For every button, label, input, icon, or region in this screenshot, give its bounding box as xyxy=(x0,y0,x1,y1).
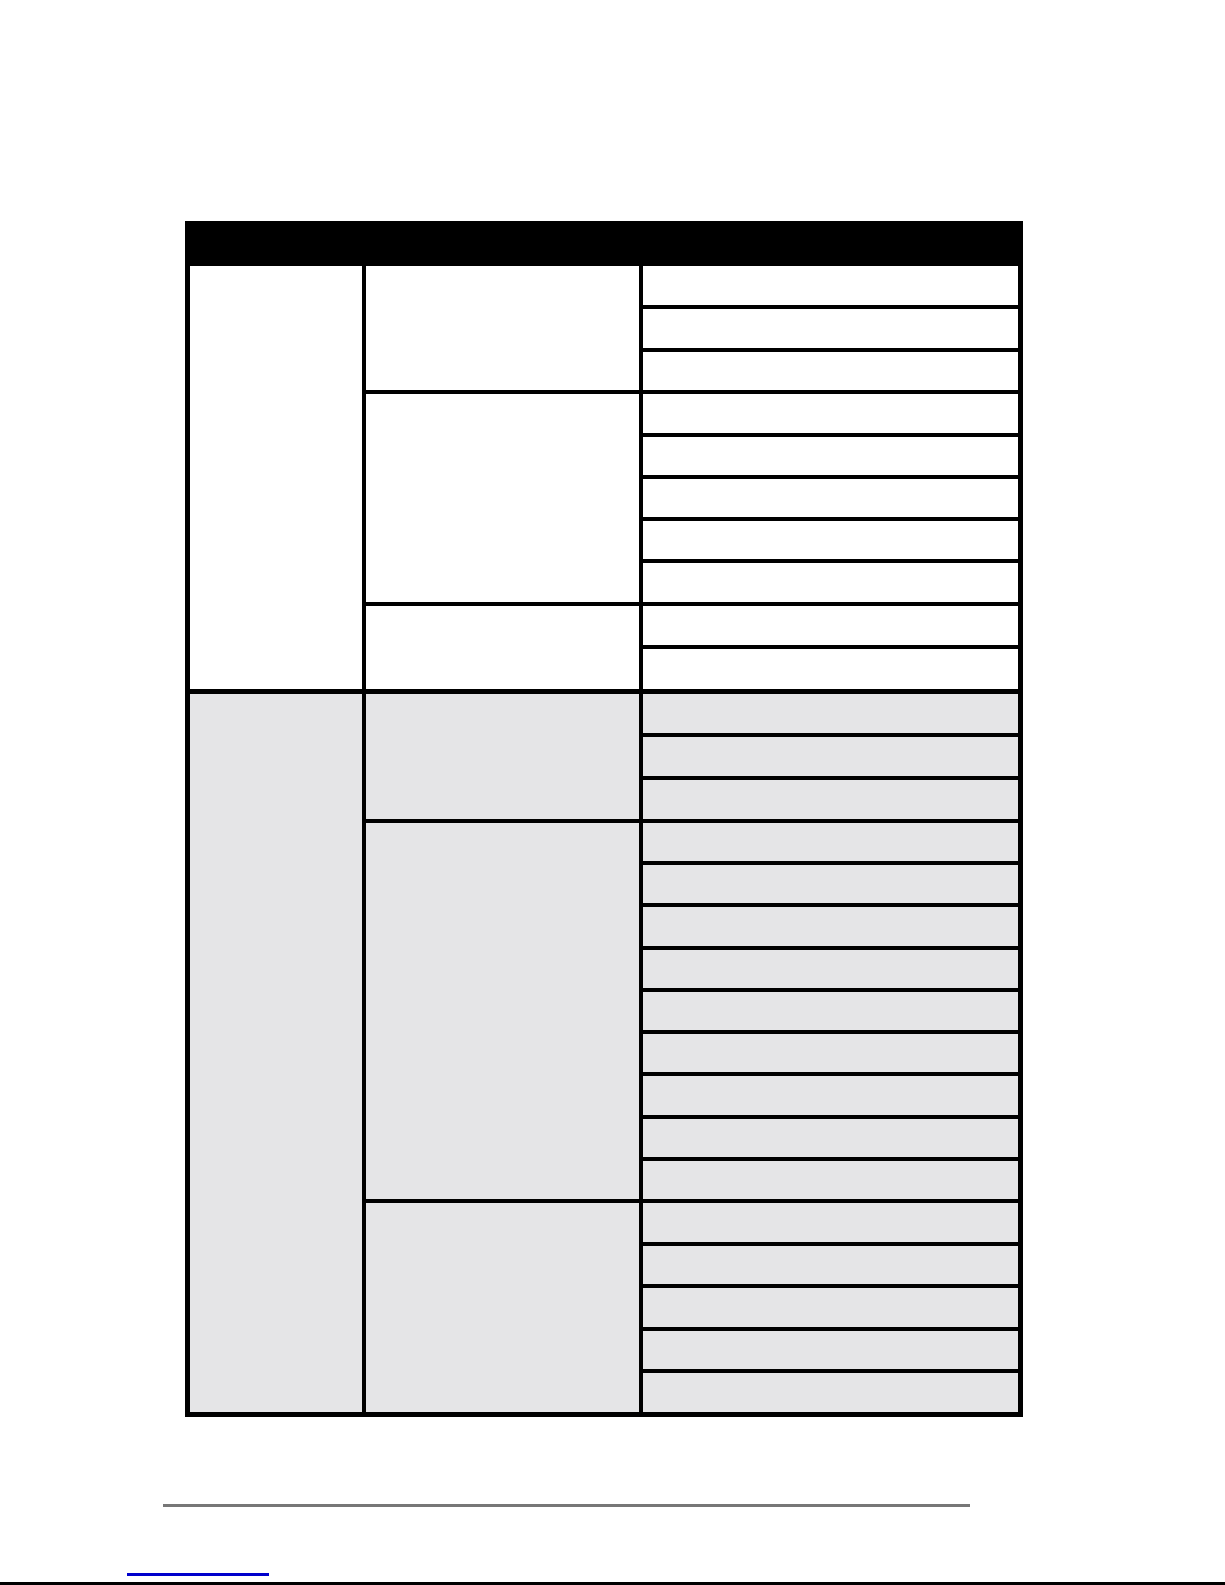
item-cell xyxy=(643,1115,1018,1157)
item-cell xyxy=(643,348,1018,391)
item-cell xyxy=(643,903,1018,945)
item-cell xyxy=(643,1284,1018,1327)
item-cell xyxy=(643,517,1018,559)
subcategory-cell xyxy=(366,694,643,819)
row-group xyxy=(366,602,1018,689)
subcategory-cell xyxy=(366,394,643,601)
item-cell xyxy=(643,861,1018,903)
item-cell xyxy=(643,988,1018,1030)
row-group xyxy=(366,1199,1018,1412)
category-cell xyxy=(190,266,366,689)
footer-link-underline[interactable] xyxy=(127,1573,269,1576)
item-rows xyxy=(643,1203,1018,1412)
item-cell xyxy=(643,559,1018,601)
item-cell xyxy=(643,1157,1018,1199)
item-cell xyxy=(643,394,1018,432)
table-header-bar xyxy=(188,224,1020,266)
item-rows xyxy=(643,266,1018,390)
item-rows xyxy=(643,394,1018,601)
spec-table xyxy=(185,221,1023,1417)
item-cell xyxy=(643,1203,1018,1242)
section-groups xyxy=(366,694,1018,1412)
item-cell xyxy=(643,645,1018,688)
item-rows xyxy=(643,606,1018,689)
item-rows xyxy=(643,823,1018,1199)
subcategory-cell xyxy=(366,606,643,689)
footer-rule xyxy=(163,1504,970,1507)
table-section-lower xyxy=(190,689,1018,1412)
subcategory-cell xyxy=(366,823,643,1199)
item-cell xyxy=(643,1327,1018,1370)
table-section-upper xyxy=(190,266,1018,689)
row-group xyxy=(366,266,1018,390)
item-cell xyxy=(643,946,1018,988)
item-rows xyxy=(643,694,1018,819)
item-cell xyxy=(643,694,1018,733)
item-cell xyxy=(643,823,1018,861)
item-cell xyxy=(643,1242,1018,1285)
item-cell xyxy=(643,1030,1018,1072)
document-page xyxy=(0,0,1225,1585)
item-cell xyxy=(643,1369,1018,1412)
item-cell xyxy=(643,1072,1018,1114)
item-cell xyxy=(643,266,1018,305)
subcategory-cell xyxy=(366,266,643,390)
item-cell xyxy=(643,776,1018,819)
row-group xyxy=(366,694,1018,819)
item-cell xyxy=(643,475,1018,517)
row-group xyxy=(366,819,1018,1199)
item-cell xyxy=(643,433,1018,475)
item-cell xyxy=(643,606,1018,645)
subcategory-cell xyxy=(366,1203,643,1412)
item-cell xyxy=(643,305,1018,348)
section-groups xyxy=(366,266,1018,689)
row-group xyxy=(366,390,1018,601)
item-cell xyxy=(643,733,1018,776)
category-cell xyxy=(190,694,366,1412)
